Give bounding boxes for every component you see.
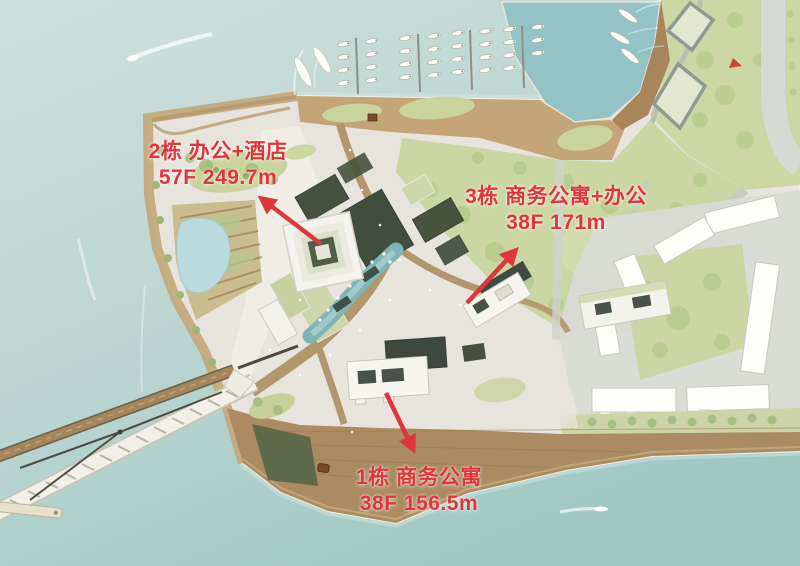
label-building-1-line2: 38F 156.5m (348, 491, 490, 517)
masterplan-screenshot: 2栋 办公+酒店 57F 249.7m 3栋 商务公寓+办公 38F 171m … (0, 0, 800, 566)
residential-slab (592, 388, 676, 412)
label-building-2: 2栋 办公+酒店 57F 249.7m (140, 139, 296, 191)
speedboat (594, 507, 608, 512)
pier-kiosk (368, 114, 377, 121)
residential-slab (687, 385, 770, 412)
label-building-1: 1栋 商务公寓 38F 156.5m (348, 465, 490, 517)
label-building-3-line1: 3栋 商务公寓+办公 (455, 184, 657, 210)
label-building-3-line2: 38F 171m (455, 210, 657, 236)
dock-boat-icon (317, 463, 329, 472)
label-building-2-line2: 57F 249.7m (140, 165, 296, 191)
label-building-3: 3栋 商务公寓+办公 38F 171m (455, 184, 657, 236)
label-building-1-line1: 1栋 商务公寓 (348, 465, 490, 491)
label-building-2-line1: 2栋 办公+酒店 (140, 139, 296, 165)
